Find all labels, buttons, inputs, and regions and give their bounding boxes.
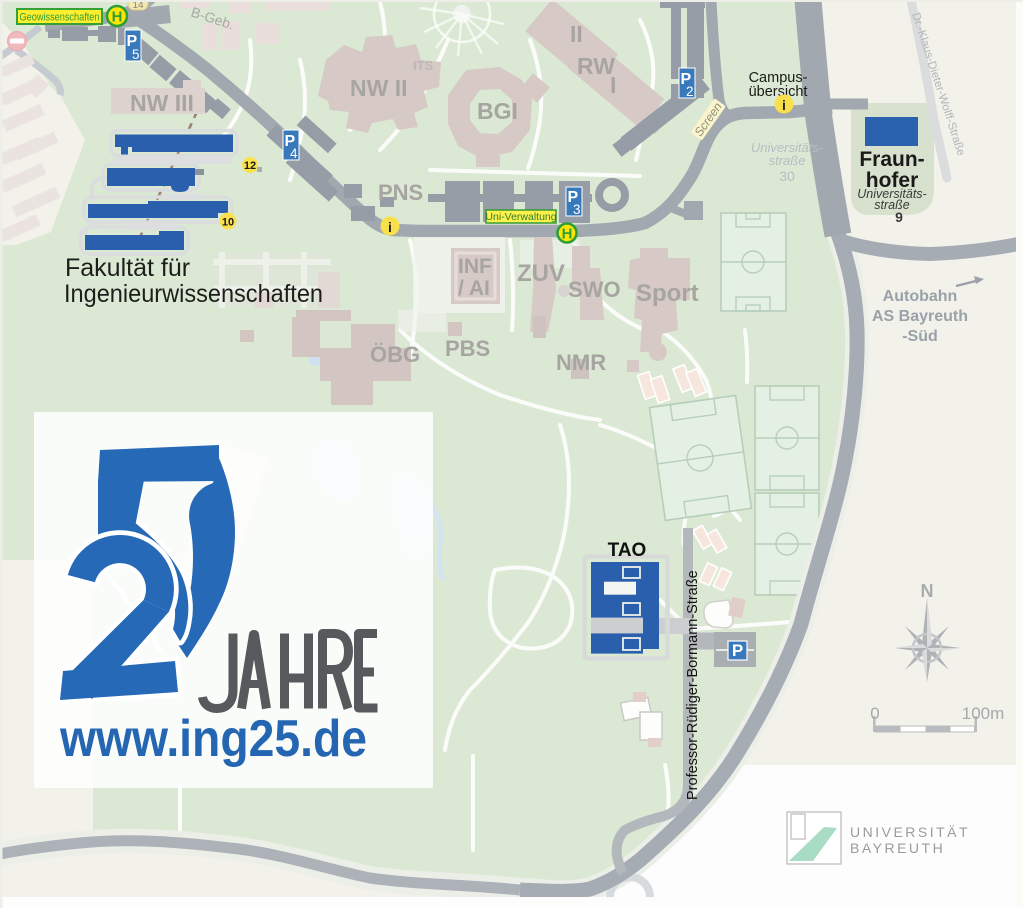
svg-text:www.ing25.de: www.ing25.de: [59, 710, 367, 768]
svg-text:i: i: [388, 219, 392, 235]
svg-text:straße: straße: [874, 198, 909, 212]
svg-text:UNIVERSITÄT: UNIVERSITÄT: [850, 824, 970, 840]
svg-text:Professor-Rüdiger-Bormann-Stra: Professor-Rüdiger-Bormann-Straße: [685, 570, 701, 800]
svg-text:Sport: Sport: [636, 280, 699, 307]
svg-text:INF: INF: [458, 255, 492, 278]
svg-text:H: H: [112, 9, 123, 26]
svg-text:BGI: BGI: [477, 98, 518, 124]
svg-text:ITS: ITS: [413, 58, 434, 73]
svg-text:-Süd: -Süd: [902, 328, 938, 345]
svg-text:12: 12: [244, 160, 256, 172]
svg-text:N: N: [921, 581, 934, 601]
svg-text:SWO: SWO: [568, 277, 621, 302]
svg-text:AS Bayreuth: AS Bayreuth: [872, 308, 968, 325]
svg-text:PNS: PNS: [378, 180, 423, 205]
svg-text:NMR: NMR: [556, 350, 606, 375]
svg-text:/ AI: / AI: [458, 277, 490, 300]
svg-text:straße: straße: [769, 153, 806, 168]
svg-text:Fraun-: Fraun-: [859, 148, 924, 171]
svg-text:BAYREUTH: BAYREUTH: [850, 840, 945, 856]
svg-text:PBS: PBS: [445, 336, 490, 361]
svg-text:100m: 100m: [962, 704, 1005, 723]
svg-text:5: 5: [132, 47, 140, 62]
svg-text:Autobahn: Autobahn: [883, 288, 958, 305]
svg-text:NW III: NW III: [130, 90, 194, 116]
svg-text:Uni-Verwaltung: Uni-Verwaltung: [485, 211, 556, 223]
svg-text:I: I: [610, 72, 616, 98]
svg-text:30: 30: [779, 168, 795, 184]
svg-text:10: 10: [222, 217, 234, 229]
svg-text:II: II: [570, 21, 583, 47]
svg-text:ZUV: ZUV: [517, 260, 565, 287]
svg-text:Geowissenschaften: Geowissenschaften: [20, 12, 100, 24]
svg-text:Ingenieurwissenschaften: Ingenieurwissenschaften: [64, 280, 323, 308]
svg-text:P: P: [732, 641, 743, 660]
svg-text:NW II: NW II: [350, 75, 408, 101]
svg-text:i: i: [782, 97, 786, 113]
svg-text:0: 0: [870, 704, 879, 723]
svg-text:2: 2: [686, 84, 694, 99]
svg-text:TAO: TAO: [608, 540, 647, 561]
svg-text:9: 9: [895, 209, 903, 225]
svg-text:3: 3: [573, 202, 581, 217]
svg-text:Fakultät für: Fakultät für: [65, 254, 190, 282]
svg-text:ÖBG: ÖBG: [370, 342, 420, 367]
svg-text:4: 4: [290, 146, 298, 161]
svg-text:H: H: [562, 226, 573, 243]
